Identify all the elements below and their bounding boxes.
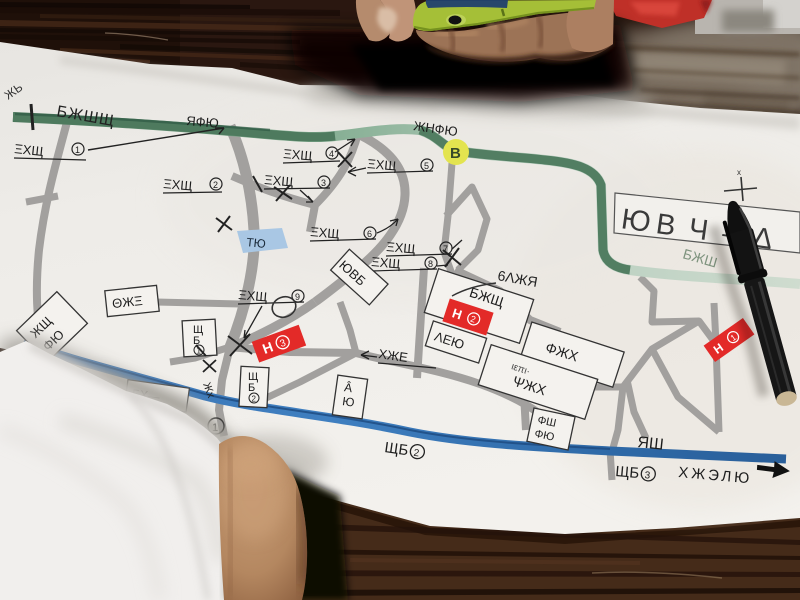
- svg-text:ΞΧЩ: ΞΧЩ: [367, 156, 398, 173]
- svg-text:Б: Б: [248, 382, 255, 394]
- svg-text:ΞΧЩ: ΞΧЩ: [163, 176, 194, 193]
- svg-text:ΘЖΞ: ΘЖΞ: [111, 293, 143, 311]
- svg-text:ΞΧЩ: ΞΧЩ: [283, 146, 314, 163]
- svg-text:3: 3: [321, 178, 326, 188]
- svg-text:x: x: [737, 168, 741, 177]
- svg-text:ΞΧЩ: ΞΧЩ: [386, 239, 417, 256]
- svg-text:2: 2: [252, 395, 257, 404]
- svg-text:ΞΧЩ: ΞΧЩ: [238, 287, 269, 304]
- svg-text:ЩБ: ЩБ: [383, 439, 409, 459]
- svg-text:ЩБ: ЩБ: [615, 463, 640, 482]
- svg-text:ЯШ: ЯШ: [637, 434, 665, 454]
- svg-text:5: 5: [424, 161, 429, 171]
- svg-text:ТЮ: ТЮ: [246, 235, 267, 251]
- svg-text:ΞΧЩ: ΞΧЩ: [264, 172, 295, 189]
- svg-text:ЯФЮ: ЯФЮ: [186, 113, 220, 131]
- svg-text:Ю: Ю: [341, 394, 355, 410]
- svg-text:9: 9: [295, 292, 300, 302]
- svg-text:ΞΧЩ: ΞΧЩ: [14, 141, 45, 159]
- svg-text:Ю: Ю: [619, 203, 652, 239]
- svg-text:8: 8: [428, 259, 433, 269]
- svg-text:4: 4: [329, 149, 334, 159]
- svg-text:6: 6: [367, 229, 372, 239]
- svg-text:ΞΧЩ: ΞΧЩ: [371, 254, 402, 271]
- svg-text:1: 1: [75, 145, 80, 155]
- svg-text:ΞΧЩ: ΞΧЩ: [310, 224, 341, 241]
- svg-text:2: 2: [213, 180, 218, 190]
- svg-text:B: B: [450, 145, 461, 162]
